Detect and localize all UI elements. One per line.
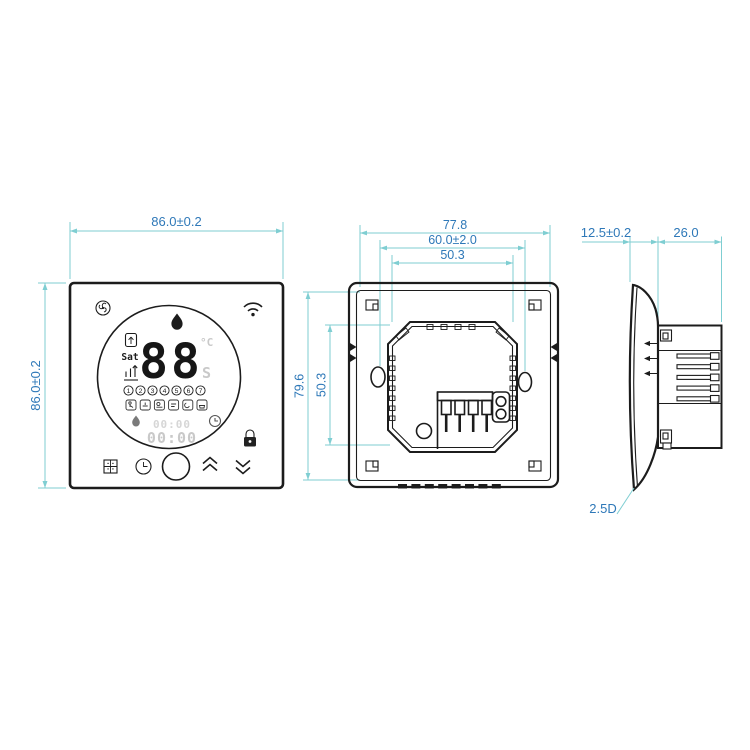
front-view: 86.0±0.2 86.0±0.2 [28, 214, 283, 488]
time-display-large: 00:00 [147, 429, 197, 447]
back-inner-height-label: 50.3 [315, 373, 329, 397]
front-height-dimension: 86.0±0.2 [28, 283, 66, 488]
glass-curve-callout: 2.5D [589, 488, 634, 516]
program-steps-icon [124, 366, 138, 381]
chevron-up-icon [203, 458, 217, 471]
chevron-down-icon [236, 461, 250, 474]
back-width-label: 77.8 [443, 218, 467, 232]
mount-hole-right [519, 373, 532, 392]
leave-home-icon [126, 400, 136, 410]
front-width-dimension: 86.0±0.2 [70, 214, 283, 279]
panel-glass-line [634, 288, 638, 488]
power-button-icon [163, 453, 190, 480]
drawing-canvas: 86.0±0.2 86.0±0.2 [0, 0, 750, 750]
sensor-hole [417, 424, 432, 439]
back-view: 77.8 60.0±2.0 50.3 79.6 [293, 218, 559, 489]
flame-small-icon [132, 416, 140, 427]
mount-hole-left [371, 367, 385, 387]
module-octagon-outer [388, 322, 517, 452]
terminal-block [438, 392, 510, 449]
side-view: 12.5±0.2 26.0 [581, 225, 722, 516]
back-inner-height-dimension: 50.3 [315, 325, 391, 445]
period-number: 2 [139, 388, 143, 395]
period-number: 1 [127, 388, 131, 395]
day-label: Sat [121, 352, 138, 363]
set-flag: S [202, 364, 211, 382]
period-evening-icon [169, 400, 179, 410]
box-depth-label: 26.0 [673, 225, 698, 240]
clock-small-icon [210, 416, 221, 427]
box-hooks [661, 330, 672, 449]
period-number: 7 [199, 388, 203, 395]
wifi-icon [244, 303, 262, 316]
period-day-icon [154, 400, 164, 410]
clock-icon [136, 459, 151, 474]
period-number: 4 [163, 388, 167, 395]
period-number: 3 [151, 388, 155, 395]
lcd-display: Sat 88 °C S 1 2 3 4 5 6 7 [121, 314, 220, 448]
grid-icon [104, 460, 117, 473]
touch-buttons [104, 453, 250, 480]
side-depth-dimensions: 12.5±0.2 26.0 [581, 225, 722, 322]
period-icons [126, 400, 207, 410]
temperature-unit: °C [200, 336, 213, 349]
back-height-label: 79.6 [293, 374, 307, 398]
bathtub-icon [197, 400, 207, 410]
side-notches [350, 343, 557, 362]
front-height-label: 86.0±0.2 [28, 360, 43, 411]
snap-prongs [644, 341, 658, 376]
back-inner-width-label: 50.3 [440, 248, 464, 262]
glass-curve-label: 2.5D [589, 501, 616, 516]
flame-icon [171, 314, 182, 330]
lock-icon [244, 430, 256, 447]
valve-icon [126, 334, 137, 347]
panel-depth-label: 12.5±0.2 [581, 225, 632, 240]
front-width-label: 86.0±0.2 [151, 214, 202, 229]
eco-swirl-icon [96, 301, 110, 315]
module-octagon-inner [393, 327, 513, 448]
heat-sink-fins [677, 353, 719, 402]
temperature-value: 88 [139, 334, 203, 390]
period-number: 6 [187, 388, 191, 395]
period-morning-icon [140, 400, 150, 410]
period-number: 5 [175, 388, 179, 395]
period-night-icon [183, 400, 193, 410]
back-inner-width-dimension: 50.3 [392, 248, 513, 322]
technical-drawing: 86.0±0.2 86.0±0.2 [0, 0, 750, 750]
mount-spacing-label: 60.0±2.0 [428, 233, 477, 247]
